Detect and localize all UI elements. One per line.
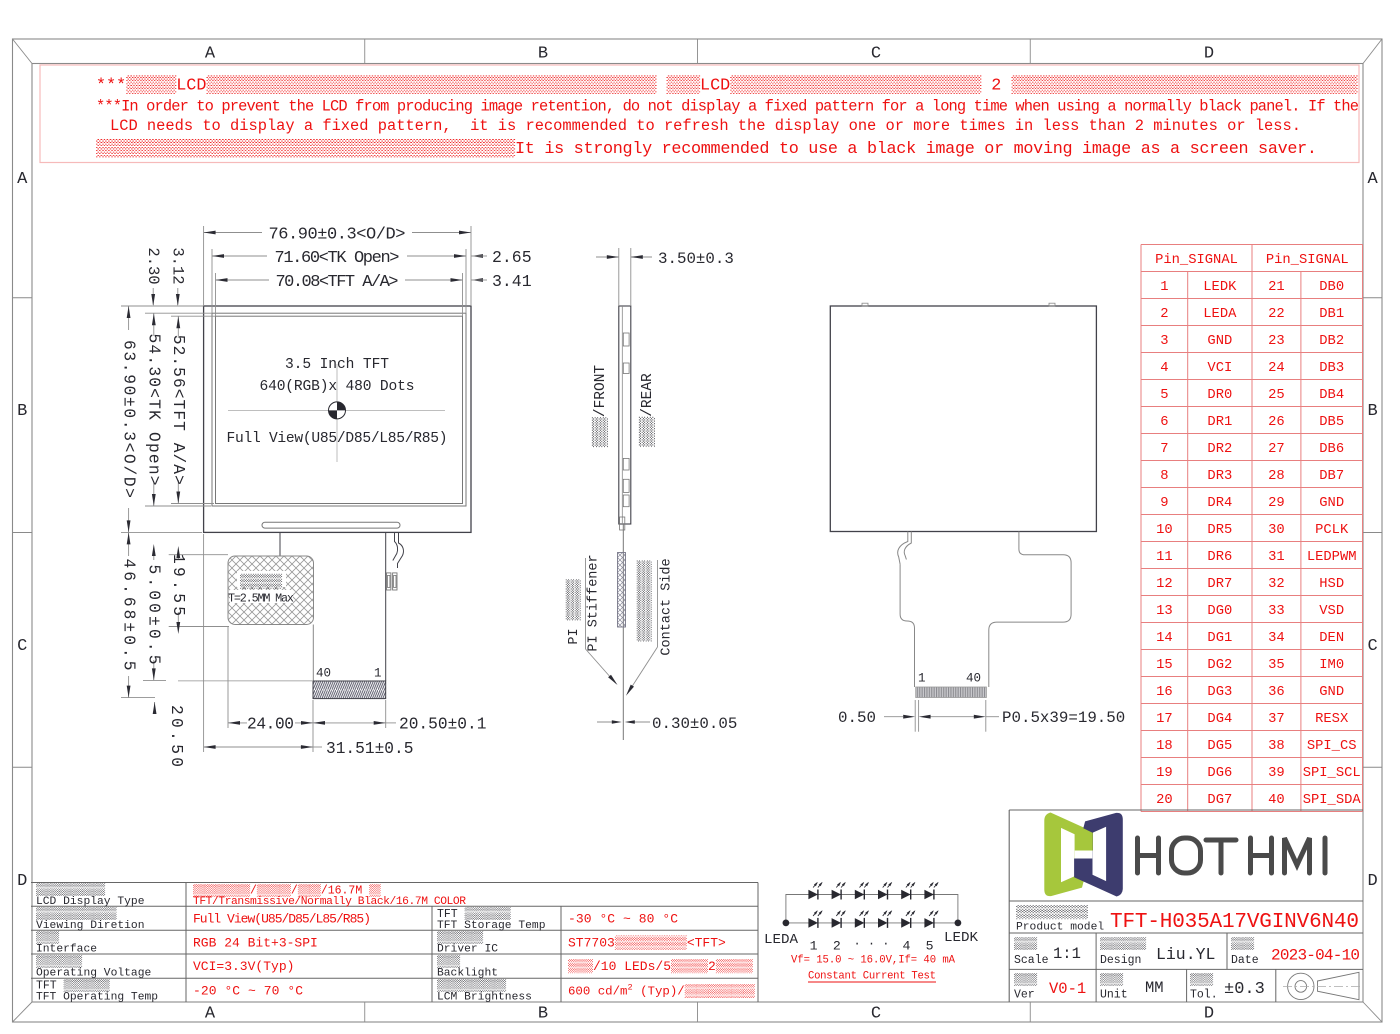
svg-text:▒▒▒▒: ▒▒▒▒	[1100, 937, 1148, 951]
svg-text:DR3: DR3	[1207, 469, 1232, 484]
svg-text:2.65: 2.65	[492, 248, 532, 267]
svg-text:12: 12	[1156, 577, 1173, 592]
svg-text:46.68±0.5: 46.68±0.5	[119, 559, 137, 671]
svg-text:63.90±0.3<O/D>: 63.90±0.3<O/D>	[119, 340, 137, 498]
svg-text:***▒▒▒LCD▒▒▒▒▒▒▒▒▒▒▒▒▒▒▒▒▒▒▒▒▒: ***▒▒▒LCD▒▒▒▒▒▒▒▒▒▒▒▒▒▒▒▒▒▒▒▒▒▒▒▒▒▒▒ ▒▒L…	[96, 76, 1357, 96]
svg-text:Liu.YL: Liu.YL	[1156, 945, 1215, 964]
svg-text:24: 24	[1268, 361, 1285, 376]
svg-text:DB2: DB2	[1319, 334, 1344, 349]
svg-text:Pin_SIGNAL: Pin_SIGNAL	[1155, 252, 1238, 268]
svg-text:DG0: DG0	[1207, 604, 1232, 619]
svg-text:TFT ▒▒▒▒: TFT ▒▒▒▒	[437, 907, 512, 921]
svg-text:PI ▒▒▒: PI ▒▒▒	[565, 578, 582, 645]
svg-text:▒▒: ▒▒	[1190, 973, 1215, 987]
svg-text:1: 1	[918, 672, 926, 686]
svg-text:▒▒▒▒: ▒▒▒▒	[1016, 905, 1088, 920]
svg-text:LEDK: LEDK	[1203, 280, 1237, 295]
svg-text:4: 4	[902, 939, 910, 954]
svg-text:640(RGB)x 480 Dots: 640(RGB)x 480 Dots	[260, 379, 415, 395]
svg-text:16: 16	[1156, 685, 1173, 700]
svg-text:▒▒: ▒▒	[1100, 973, 1125, 987]
svg-text:▒▒: ▒▒	[1014, 973, 1039, 987]
svg-text:Backlight: Backlight	[437, 968, 498, 980]
svg-text:-30 °C ~ 80 °C: -30 °C ~ 80 °C	[568, 912, 678, 927]
svg-text:DR0: DR0	[1207, 388, 1232, 403]
svg-text:9: 9	[1160, 496, 1168, 511]
svg-text:VCI: VCI	[1207, 361, 1232, 376]
svg-text:27: 27	[1268, 442, 1285, 457]
svg-text:▒▒▒▒▒▒: ▒▒▒▒▒▒	[636, 559, 653, 641]
svg-text:DG3: DG3	[1207, 685, 1232, 700]
svg-text:5: 5	[926, 939, 934, 954]
svg-text:VSD: VSD	[1319, 604, 1344, 619]
svg-text:15: 15	[1156, 658, 1173, 673]
svg-text:A: A	[205, 1005, 216, 1024]
svg-text:LEDK: LEDK	[944, 930, 979, 946]
svg-text:B: B	[1367, 402, 1377, 421]
svg-text:26: 26	[1268, 415, 1285, 430]
svg-text:3.50±0.3: 3.50±0.3	[658, 250, 734, 268]
svg-text:1:1: 1:1	[1053, 945, 1081, 963]
svg-text:TFT-H035A17VGINV6N40: TFT-H035A17VGINV6N40	[1110, 911, 1359, 934]
svg-text:A: A	[1367, 170, 1378, 189]
svg-text:MM: MM	[1145, 979, 1164, 997]
svg-text:Interface: Interface	[36, 944, 97, 956]
svg-text:Viewing Diretion: Viewing Diretion	[36, 920, 144, 932]
svg-text:TFT Operating Temp: TFT Operating Temp	[36, 992, 158, 1004]
svg-text:Scale: Scale	[1014, 954, 1049, 967]
svg-text:Date: Date	[1231, 954, 1259, 967]
svg-text:40: 40	[1268, 793, 1285, 808]
svg-text:Full View(U85/D85/L85/R85): Full View(U85/D85/L85/R85)	[227, 431, 448, 447]
svg-text:0.30±0.05: 0.30±0.05	[652, 715, 737, 733]
svg-text:24.00: 24.00	[247, 716, 294, 734]
svg-text:DB1: DB1	[1319, 307, 1344, 322]
svg-text:1: 1	[374, 667, 382, 681]
svg-text:Full View(U85/D85/L85/R85): Full View(U85/D85/L85/R85)	[193, 912, 371, 927]
svg-text:SPI_CS: SPI_CS	[1307, 739, 1357, 754]
svg-text:DB4: DB4	[1319, 388, 1344, 403]
svg-text:-20 °C ~ 70 °C: -20 °C ~ 70 °C	[193, 983, 303, 998]
svg-text:23: 23	[1268, 334, 1285, 349]
svg-text:DR6: DR6	[1207, 550, 1232, 565]
svg-text:10: 10	[1156, 523, 1173, 538]
svg-text:DB3: DB3	[1319, 361, 1344, 376]
svg-text:▒▒▒▒▒▒▒▒▒▒▒▒▒▒▒▒▒▒▒▒▒▒▒It is s: ▒▒▒▒▒▒▒▒▒▒▒▒▒▒▒▒▒▒▒▒▒▒▒It is strongly re…	[96, 139, 1317, 159]
svg-text:36: 36	[1268, 685, 1285, 700]
svg-text:17: 17	[1156, 712, 1173, 727]
svg-text:VCI=3.3V(Typ): VCI=3.3V(Typ)	[193, 959, 294, 974]
svg-text:±0.3: ±0.3	[1224, 980, 1265, 999]
svg-text:PCLK: PCLK	[1315, 523, 1349, 538]
svg-text:1: 1	[810, 939, 818, 954]
svg-text:76.90±0.3<O/D>: 76.90±0.3<O/D>	[269, 225, 406, 244]
svg-text:D: D	[1204, 1005, 1214, 1024]
svg-text:D: D	[17, 872, 27, 891]
svg-text:7: 7	[1160, 442, 1168, 457]
svg-text:4: 4	[1160, 361, 1168, 376]
svg-text:C: C	[17, 637, 27, 656]
svg-text:DR7: DR7	[1207, 577, 1232, 592]
svg-text:▒▒/FRONT: ▒▒/FRONT	[591, 365, 609, 448]
svg-text:28: 28	[1268, 469, 1285, 484]
svg-text:D: D	[1204, 45, 1214, 64]
svg-text:RGB 24 Bit+3-SPI: RGB 24 Bit+3-SPI	[193, 935, 318, 950]
svg-text:40: 40	[966, 672, 981, 686]
svg-text:Unit: Unit	[1100, 989, 1128, 1002]
svg-text:DR5: DR5	[1207, 523, 1232, 538]
svg-text:38: 38	[1268, 739, 1285, 754]
svg-text:DR4: DR4	[1207, 496, 1232, 511]
svg-text:V0-1: V0-1	[1049, 980, 1086, 998]
svg-text:DB0: DB0	[1319, 280, 1344, 295]
svg-text:20.50±0.1: 20.50±0.1	[399, 716, 486, 734]
svg-text:DB5: DB5	[1319, 415, 1344, 430]
svg-text:IM0: IM0	[1319, 658, 1344, 673]
svg-text:Design: Design	[1100, 954, 1141, 967]
svg-text:2: 2	[1160, 307, 1168, 322]
svg-text:***In order to prevent the LCD: ***In order to prevent the LCD from prod…	[96, 98, 1359, 116]
svg-text:▒▒: ▒▒	[437, 955, 462, 969]
svg-text:Constant Current Test: Constant Current Test	[808, 971, 936, 983]
svg-text:SPI_SDA: SPI_SDA	[1303, 793, 1362, 808]
svg-text:71.60<TK Open>: 71.60<TK Open>	[275, 249, 400, 268]
svg-text:14: 14	[1156, 631, 1173, 646]
svg-text:▒▒▒▒▒▒: ▒▒▒▒▒▒	[437, 979, 508, 993]
svg-text:LCD Display Type: LCD Display Type	[36, 896, 145, 908]
svg-text:30: 30	[1268, 523, 1285, 538]
svg-text:LCD needs to display a fixed p: LCD needs to display a fixed pattern, it…	[110, 117, 1301, 135]
svg-text:25: 25	[1268, 388, 1285, 403]
svg-text:GND: GND	[1319, 685, 1344, 700]
svg-text:B: B	[538, 45, 548, 64]
svg-text:DG5: DG5	[1207, 739, 1232, 754]
svg-text:A: A	[17, 170, 28, 189]
svg-text:D: D	[1367, 872, 1377, 891]
svg-text:54.30<TK Open>: 54.30<TK Open>	[145, 334, 163, 486]
svg-text:LEDA: LEDA	[1203, 307, 1237, 322]
svg-text:Product model: Product model	[1016, 922, 1104, 934]
svg-text:C: C	[1367, 637, 1377, 656]
svg-text:· · ·: · · ·	[853, 937, 889, 951]
svg-text:DR1: DR1	[1207, 415, 1232, 430]
svg-text:Vf= 15.0 ~ 16.0V,If= 40 mA: Vf= 15.0 ~ 16.0V,If= 40 mA	[791, 955, 956, 967]
svg-text:DG2: DG2	[1207, 658, 1232, 673]
svg-text:Driver IC: Driver IC	[437, 944, 498, 956]
svg-text:13: 13	[1156, 604, 1173, 619]
svg-text:19: 19	[1156, 766, 1173, 781]
svg-text:C: C	[871, 1005, 881, 1024]
svg-text:11: 11	[1156, 550, 1173, 565]
svg-text:600 cd/m2 (Typ)/▒▒▒▒▒▒: 600 cd/m2 (Typ)/▒▒▒▒▒▒	[568, 982, 756, 998]
svg-text:22: 22	[1268, 307, 1285, 322]
svg-text:TFT Storage Temp: TFT Storage Temp	[437, 920, 546, 932]
svg-text:Pin_SIGNAL: Pin_SIGNAL	[1266, 252, 1349, 268]
svg-text:RESX: RESX	[1315, 712, 1349, 727]
svg-text:LEDA: LEDA	[764, 932, 799, 948]
svg-text:TFT/Transmissive/Normally Blac: TFT/Transmissive/Normally Black/16.7M CO…	[193, 896, 466, 908]
svg-text:29: 29	[1268, 496, 1285, 511]
svg-text:5: 5	[1160, 388, 1168, 403]
svg-text:33: 33	[1268, 604, 1285, 619]
svg-text:Operating Voltage: Operating Voltage	[36, 968, 151, 980]
svg-text:2023-04-10: 2023-04-10	[1271, 947, 1360, 965]
svg-text:▒▒▒▒▒▒: ▒▒▒▒▒▒	[36, 883, 107, 897]
svg-text:GND: GND	[1207, 334, 1232, 349]
svg-text:DR2: DR2	[1207, 442, 1232, 457]
svg-text:19.55: 19.55	[169, 554, 187, 616]
svg-text:6: 6	[1160, 415, 1168, 430]
svg-text:B: B	[17, 402, 27, 421]
svg-text:DB7: DB7	[1319, 469, 1344, 484]
svg-text:18: 18	[1156, 739, 1173, 754]
svg-text:C: C	[871, 45, 881, 64]
svg-text:B: B	[538, 1005, 548, 1024]
svg-text:20: 20	[1156, 793, 1173, 808]
svg-text:P0.5x39=19.50: P0.5x39=19.50	[1002, 709, 1125, 727]
svg-text:8: 8	[1160, 469, 1168, 484]
svg-text:34: 34	[1268, 631, 1285, 646]
svg-text:37: 37	[1268, 712, 1285, 727]
svg-text:31.51±0.5: 31.51±0.5	[326, 740, 413, 758]
svg-text:32: 32	[1268, 577, 1285, 592]
svg-text:▒▒/REAR: ▒▒/REAR	[638, 373, 656, 447]
svg-text:3.12: 3.12	[169, 247, 187, 284]
svg-text:DG7: DG7	[1207, 793, 1232, 808]
svg-text:▒▒▒▒: ▒▒▒▒	[36, 955, 84, 969]
svg-text:3.5 Inch TFT: 3.5 Inch TFT	[285, 357, 389, 373]
svg-text:52.56<TFT A/A>: 52.56<TFT A/A>	[169, 335, 187, 485]
svg-text:Ver: Ver	[1014, 989, 1035, 1002]
svg-text:GND: GND	[1319, 496, 1344, 511]
svg-text:Tol.: Tol.	[1190, 989, 1218, 1002]
svg-text:▒▒: ▒▒	[36, 931, 61, 945]
svg-text:40: 40	[316, 667, 331, 681]
svg-text:▒▒▒▒: ▒▒▒▒	[437, 931, 485, 945]
svg-text:DEN: DEN	[1319, 631, 1344, 646]
svg-text:2: 2	[833, 939, 841, 954]
svg-text:1: 1	[1160, 280, 1168, 295]
svg-text:HSD: HSD	[1319, 577, 1344, 592]
svg-text:▒▒: ▒▒	[1231, 937, 1256, 951]
svg-text:▒▒: ▒▒	[1014, 937, 1039, 951]
svg-text:31: 31	[1268, 550, 1285, 565]
svg-text:LEDPWM: LEDPWM	[1307, 550, 1357, 565]
svg-text:Contact Side: Contact Side	[660, 558, 675, 655]
svg-text:2.30: 2.30	[144, 247, 162, 284]
svg-text:0.50: 0.50	[838, 709, 876, 727]
svg-text:20.50: 20.50	[167, 705, 185, 767]
svg-text:DG1: DG1	[1207, 631, 1232, 646]
svg-text:35: 35	[1268, 658, 1285, 673]
svg-text:21: 21	[1268, 280, 1285, 295]
svg-text:3: 3	[1160, 334, 1168, 349]
svg-text:3.41: 3.41	[492, 272, 532, 291]
svg-text:T=2.5MM Max: T=2.5MM Max	[228, 592, 294, 606]
svg-text:DG6: DG6	[1207, 766, 1232, 781]
svg-text:70.08<TFT A/A>: 70.08<TFT A/A>	[276, 273, 399, 292]
svg-text:TFT ▒▒▒▒: TFT ▒▒▒▒	[36, 979, 111, 993]
svg-text:▒▒/10 LEDs/5▒▒▒2▒▒▒: ▒▒/10 LEDs/5▒▒▒2▒▒▒	[568, 959, 753, 974]
svg-text:DG4: DG4	[1207, 712, 1232, 727]
svg-text:ST7703▒▒▒▒▒<TFT>: ST7703▒▒▒▒▒<TFT>	[568, 935, 726, 950]
svg-text:▒▒▒: ▒▒▒	[240, 573, 284, 590]
svg-text:PI Stiffener: PI Stiffener	[587, 554, 602, 651]
svg-text:DB6: DB6	[1319, 442, 1344, 457]
svg-text:A: A	[205, 45, 216, 64]
svg-text:▒▒▒▒▒▒▒: ▒▒▒▒▒▒▒	[36, 907, 118, 921]
svg-text:LCM Brightness: LCM Brightness	[437, 992, 532, 1004]
svg-text:39: 39	[1268, 766, 1285, 781]
svg-text:SPI_SCL: SPI_SCL	[1303, 766, 1361, 781]
